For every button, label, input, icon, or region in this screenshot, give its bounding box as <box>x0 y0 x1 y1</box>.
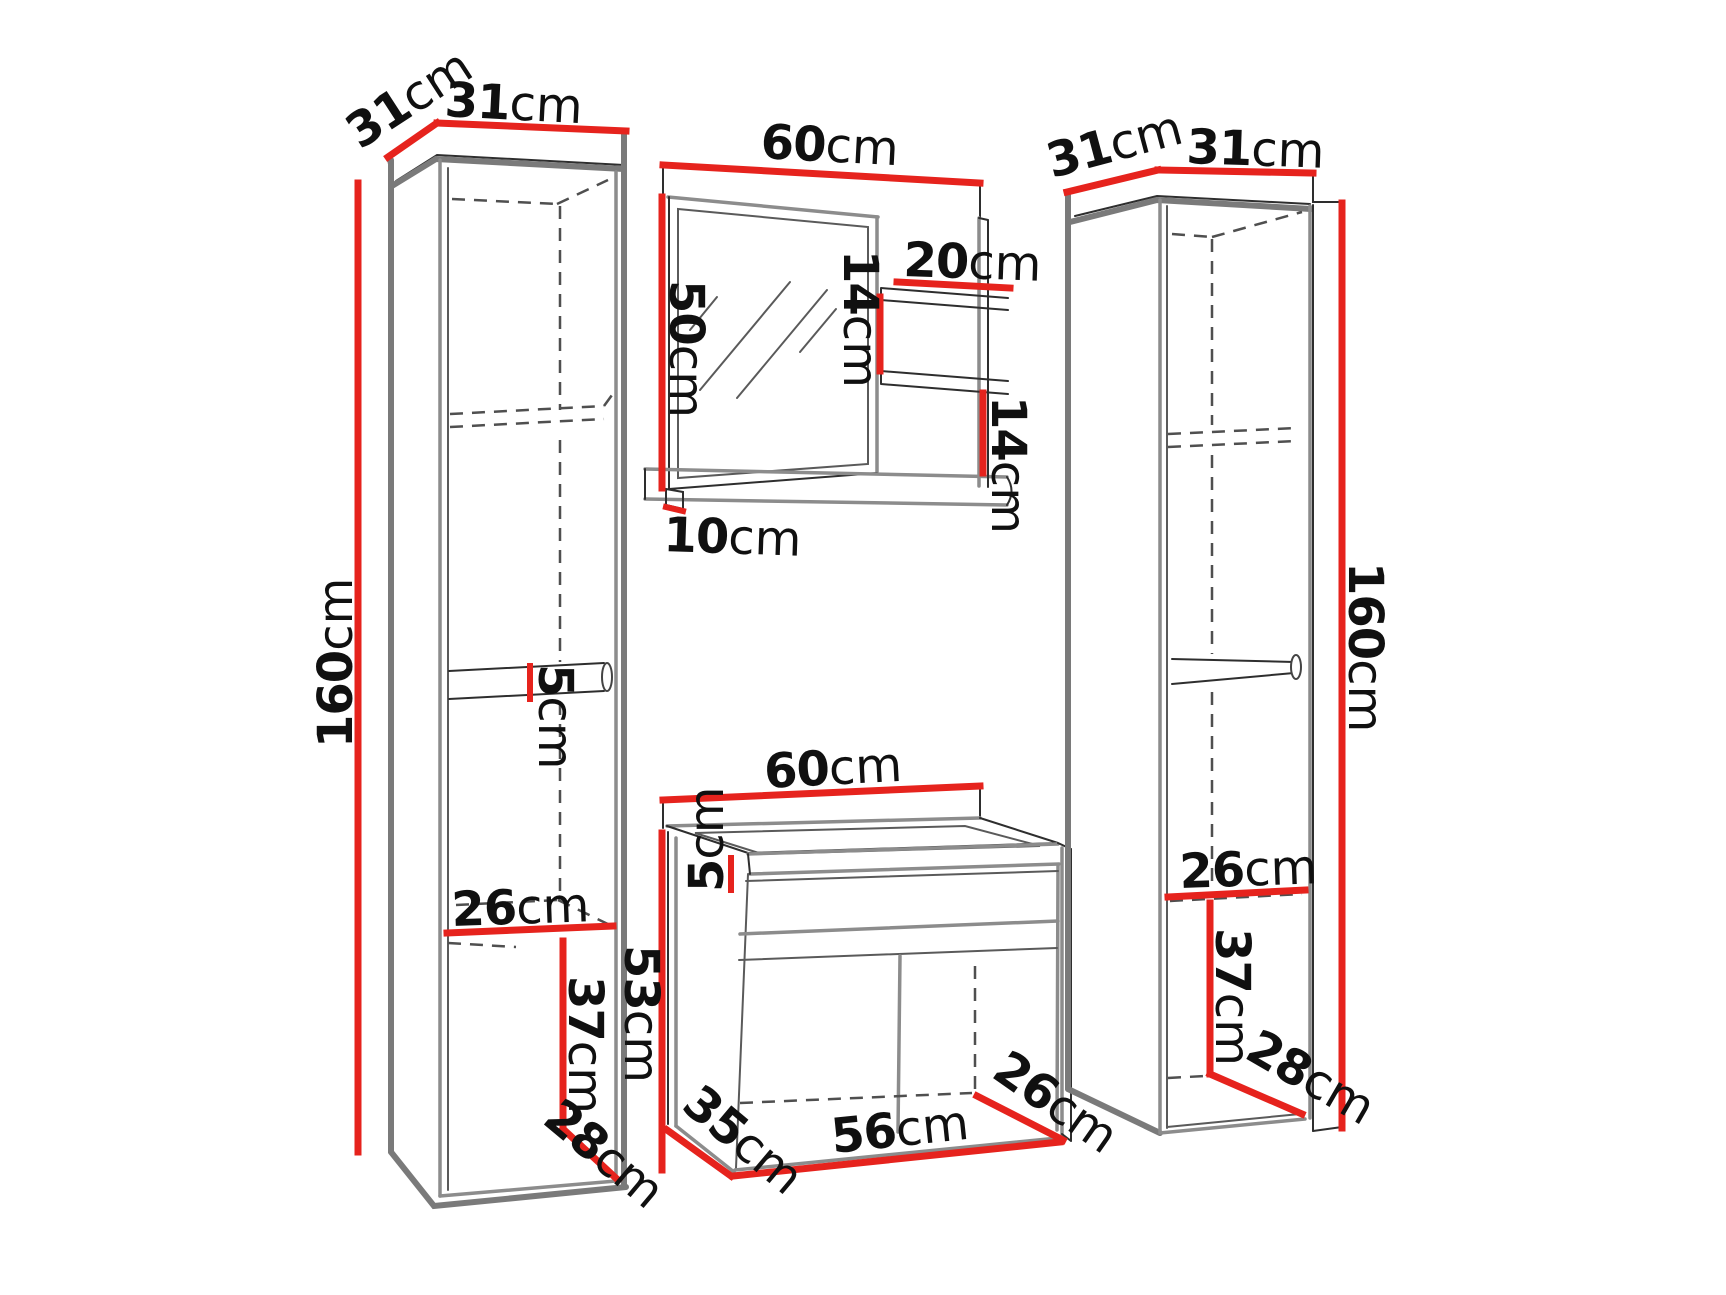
furniture-dimension-diagram: 31cm 31cm 160cm 5cm 26cm 37cm 28cm <box>0 0 1726 1295</box>
shelf-width-label: 20cm <box>903 232 1043 293</box>
lower-shelf-gap-label: 14cm <box>980 396 1036 534</box>
right-cabinet-width-label: 31cm <box>1186 119 1326 180</box>
left-cabinet-shelf-end-cap <box>602 663 612 691</box>
left-cabinet-inner-width-label: 26cm <box>450 877 590 938</box>
basin-height-label: 5cm <box>679 786 735 892</box>
right-cabinet-shelf-end-cap <box>1291 655 1301 679</box>
right-cabinet-height-label: 160cm <box>1337 562 1393 732</box>
left-cabinet-width-label: 31cm <box>443 72 584 135</box>
upper-shelf-gap-label: 14cm <box>832 250 888 388</box>
bottom-shelf-depth-label: 10cm <box>663 507 803 568</box>
mirror-height-label: 50cm <box>658 280 714 418</box>
mirror-width-label: 60cm <box>759 114 900 177</box>
left-cabinet-height-label: 160cm <box>308 578 364 748</box>
left-cabinet-shelf-label: 5cm <box>527 664 583 770</box>
background <box>0 0 1726 1295</box>
right-cabinet-inner-width-label: 26cm <box>1178 839 1318 900</box>
vanity-height-label: 53cm <box>613 945 669 1083</box>
vanity-width-label: 60cm <box>763 737 904 800</box>
diagram-canvas: 31cm 31cm 160cm 5cm 26cm 37cm 28cm <box>0 0 1726 1295</box>
